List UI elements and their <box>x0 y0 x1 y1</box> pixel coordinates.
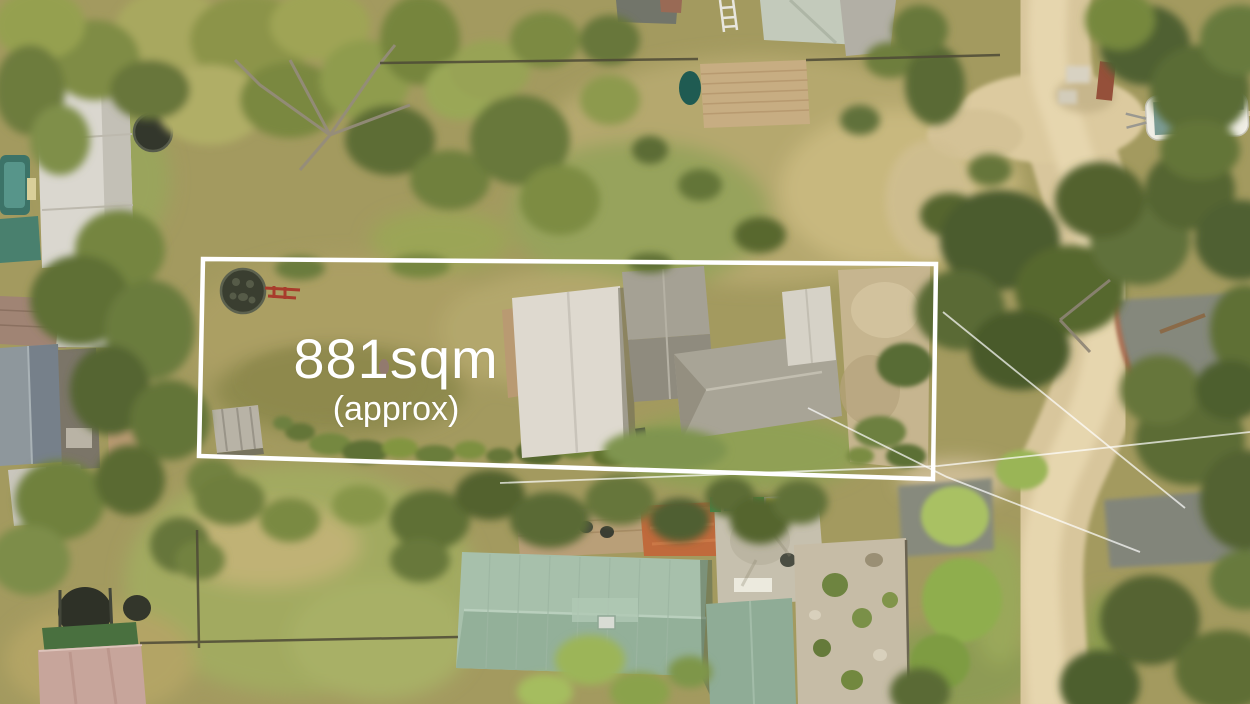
wooden-deck-top <box>700 60 810 128</box>
green-roof-secondary <box>706 598 796 704</box>
bench <box>66 428 92 448</box>
aerial-photo: 881sqm (approx) <box>0 0 1250 704</box>
trampoline <box>221 269 265 313</box>
aerial-photo-scene <box>0 0 1250 704</box>
courtyard-lawn <box>603 428 727 472</box>
carport-roof <box>512 286 630 458</box>
water-tank <box>679 71 701 105</box>
area-label: 881sqm <box>293 331 498 387</box>
area-qualifier-label: (approx) <box>333 392 460 426</box>
garden-right <box>794 538 910 704</box>
outdoor-table <box>734 578 772 592</box>
blue-grey-gable-house <box>0 344 62 466</box>
teal-shed-roof <box>0 216 41 263</box>
concrete-pad-pink <box>38 644 146 704</box>
garden-shed <box>212 405 264 459</box>
roof-vent <box>598 616 615 629</box>
